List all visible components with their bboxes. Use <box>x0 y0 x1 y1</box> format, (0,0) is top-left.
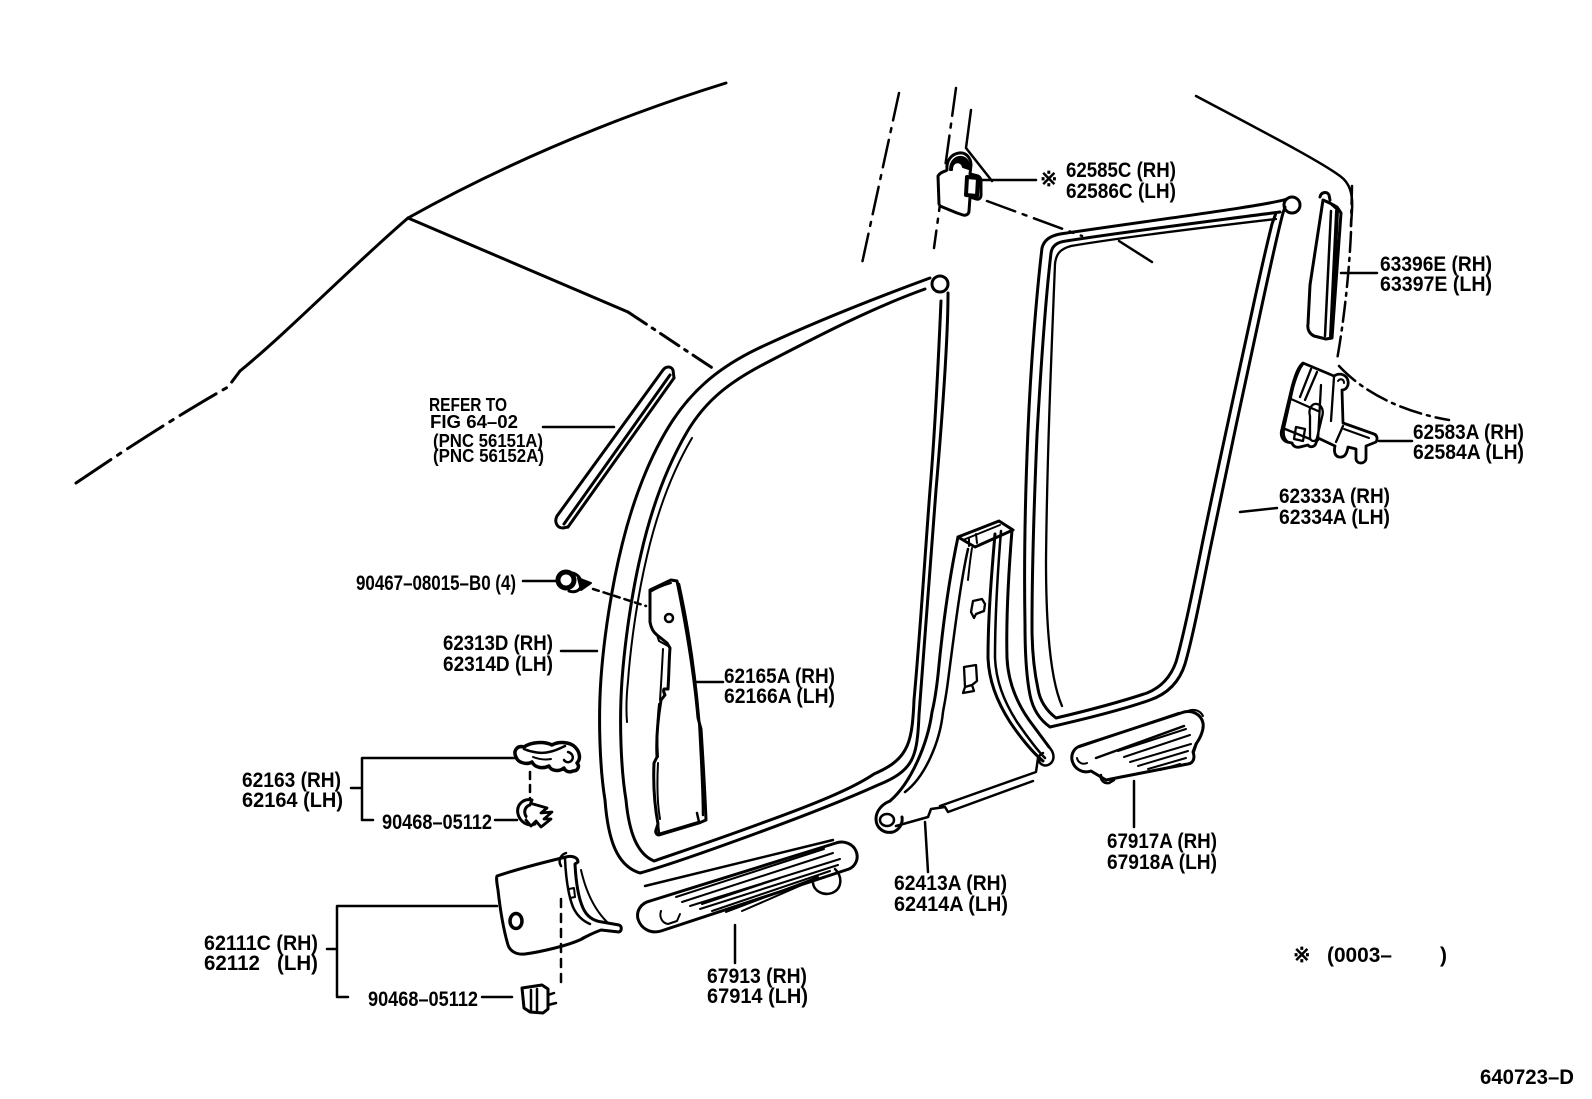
svg-text:62413A (RH): 62413A (RH) <box>894 872 1007 895</box>
svg-text:※: ※ <box>1293 944 1311 967</box>
svg-text:90468–05112: 90468–05112 <box>368 988 478 1011</box>
svg-text:90467–08015–B0 (4): 90467–08015–B0 (4) <box>356 572 516 595</box>
svg-text:62585C (RH): 62585C (RH) <box>1066 159 1176 182</box>
svg-text:90468–05112: 90468–05112 <box>382 811 492 834</box>
svg-text:62334A (LH): 62334A (LH) <box>1279 506 1390 529</box>
svg-text:(0003–: (0003– <box>1327 944 1392 967</box>
svg-text:62584A (LH): 62584A (LH) <box>1413 441 1524 464</box>
svg-text:67918A (LH): 67918A (LH) <box>1107 851 1217 874</box>
svg-text:62586C (LH): 62586C (LH) <box>1066 180 1176 203</box>
svg-text:62313D (RH): 62313D (RH) <box>443 632 553 655</box>
svg-text:640723–D: 640723–D <box>1480 1066 1574 1089</box>
svg-text:※: ※ <box>1040 168 1058 191</box>
svg-text:67914 (LH): 67914 (LH) <box>707 985 808 1008</box>
svg-text:62314D (LH): 62314D (LH) <box>443 653 553 676</box>
svg-text:62333A (RH): 62333A (RH) <box>1279 485 1390 508</box>
svg-text:(PNC 56152A): (PNC 56152A) <box>433 446 544 466</box>
svg-text:62414A (LH): 62414A (LH) <box>894 893 1008 916</box>
svg-text:FIG 64–02: FIG 64–02 <box>430 412 518 432</box>
svg-text:62164 (LH): 62164 (LH) <box>242 789 343 812</box>
svg-text:63397E (LH): 63397E (LH) <box>1380 273 1492 296</box>
svg-text:62166A (LH): 62166A (LH) <box>724 685 835 708</box>
svg-text:): ) <box>1440 944 1447 967</box>
svg-text:62112 (LH): 62112 (LH) <box>204 952 318 975</box>
svg-text:67917A (RH): 67917A (RH) <box>1107 830 1217 853</box>
